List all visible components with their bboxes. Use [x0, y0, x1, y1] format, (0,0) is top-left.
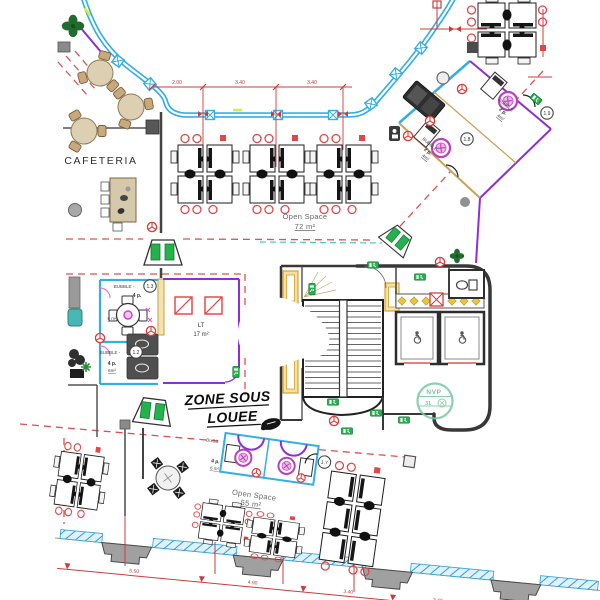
exit-sign-icon [309, 284, 315, 295]
lt-area: 17 m² [193, 332, 208, 338]
dim-top-1: 2.00 [172, 80, 182, 86]
dim-bottom-2: 4.90 [247, 580, 257, 587]
floor-box-icon [252, 468, 261, 477]
bubble19-num: 1.9 [544, 111, 551, 117]
floor-box-icon [425, 116, 434, 125]
chair [101, 208, 109, 217]
floor-box-icon [457, 84, 466, 93]
mullion-icon [329, 111, 338, 120]
open-space-top-label: Open Space [283, 212, 328, 221]
bubble-block-left: BUBBLE - 1.3 4 p. 6 m² BUBBLE - 1.2 4 p.… [95, 278, 164, 385]
sink-fixture [68, 309, 82, 326]
mullion-icon [274, 111, 283, 120]
column [69, 204, 82, 217]
exit-sign-icon [368, 262, 379, 268]
exit-sign-icon [371, 410, 382, 416]
cafeteria-label: CAFETERIA [64, 155, 137, 167]
zone-line-2: LOUEE [207, 407, 258, 426]
chair [101, 182, 109, 191]
bubble-chair-icon [234, 449, 252, 467]
cabinet [467, 42, 478, 53]
elevator-2 [440, 312, 484, 366]
bubble-chair-icon [277, 457, 295, 475]
plant-icon [81, 362, 91, 372]
floor-box-icon [403, 131, 412, 140]
exit-sign-icon [415, 274, 426, 280]
chair [113, 223, 122, 231]
bubble18-num: 1.8 [464, 137, 471, 143]
floor-box-icon [329, 416, 338, 425]
floor-plan-drawing: 5.50 4.90 3.40 3.40 2.00 [0, 0, 600, 600]
partition-mast-cap [120, 420, 130, 429]
bubble12-label: BUBBLE - [100, 350, 121, 355]
floor-box-icon [147, 222, 156, 231]
exit-sign-icon [233, 367, 239, 378]
column-box [403, 455, 415, 467]
bubble17-num: 1.7 [320, 460, 328, 467]
dim-top-2: 3.40 [235, 80, 245, 86]
floor-box-icon [296, 473, 305, 482]
floor-box-icon [95, 333, 104, 342]
bubble17-capacity: 4 p. [211, 458, 221, 465]
stool [437, 72, 449, 84]
floor-plan-canvas: 5.50 4.90 3.40 3.40 2.00 [0, 0, 600, 600]
chair [101, 195, 109, 204]
wc-room [449, 270, 484, 298]
exit-sign-icon [342, 428, 353, 434]
bubble13-label: BUBBLE - [114, 284, 135, 289]
paper-background [0, 0, 600, 600]
column [460, 197, 470, 207]
bubble13-capacity: 4 p. [133, 293, 142, 299]
exit-sign-icon [399, 417, 410, 423]
dim-top-3: 3.40 [307, 80, 317, 86]
dim-bottom-1: 5.50 [129, 568, 139, 575]
dim-bottom-3: 3.40 [343, 589, 353, 596]
stamp-text-2: 31 [425, 401, 431, 407]
bubble12-area: 6m² [108, 368, 116, 373]
open-space-top-area: 72 m² [295, 222, 316, 231]
elevator-1 [396, 312, 438, 366]
wall-column [69, 277, 80, 308]
table-item [120, 195, 128, 201]
table-item [126, 187, 131, 192]
bubble13-num: 1.3 [147, 284, 154, 290]
bubble12-num: 1.2 [133, 350, 140, 356]
floor-box-icon [146, 326, 155, 335]
lt-label: LT [198, 323, 205, 329]
floor-box-icon [435, 257, 444, 266]
bubble12-capacity: 4 p. [108, 361, 117, 367]
bubble13-area: 6 m² [108, 316, 118, 321]
stamp-text-1: NVP [426, 389, 441, 396]
exit-sign-icon [328, 399, 339, 405]
occupant-icon [389, 126, 400, 141]
